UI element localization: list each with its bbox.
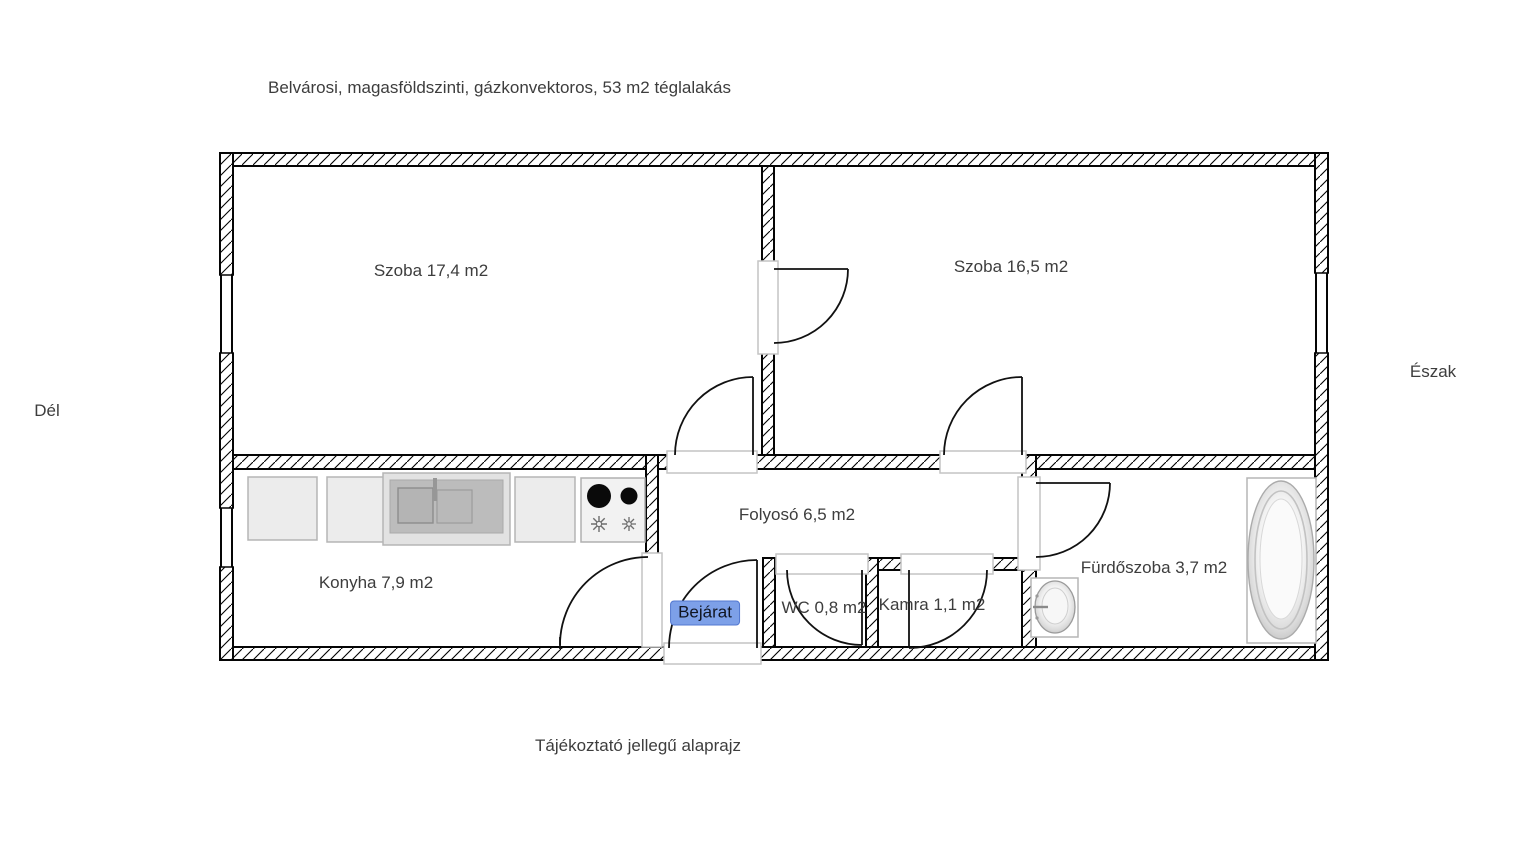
opening-entrance bbox=[664, 643, 761, 664]
wall-west-outer bbox=[220, 153, 233, 660]
opening-szoba-szoba bbox=[758, 261, 778, 354]
window-konyha bbox=[218, 508, 235, 567]
entrance-badge[interactable]: Bejárat bbox=[670, 601, 740, 626]
opening-bathroom bbox=[1018, 477, 1040, 570]
floor-plan-drawing bbox=[0, 0, 1524, 868]
compass-label-south: Dél bbox=[34, 401, 60, 421]
floor-plan-canvas: Belvárosi, magasföldszinti, gázkonvektor… bbox=[0, 0, 1524, 868]
stove-burner-large bbox=[587, 484, 611, 508]
gas-stove-icon bbox=[581, 478, 645, 542]
wall-middle-divider bbox=[233, 455, 1315, 469]
room-label-szoba-2: Szoba 16,5 m2 bbox=[954, 257, 1068, 277]
room-label-kamra: Kamra 1,1 m2 bbox=[879, 595, 986, 615]
window-szoba-2 bbox=[1313, 273, 1330, 353]
kitchen-cabinet-1-icon bbox=[248, 477, 317, 540]
bathroom-sink-icon bbox=[1031, 578, 1078, 637]
gas-burner-star bbox=[591, 516, 607, 532]
wall-north-outer bbox=[220, 153, 1328, 166]
kitchen-cabinet-2-icon bbox=[327, 477, 388, 542]
room-label-furdoszoba: Fürdőszoba 3,7 m2 bbox=[1081, 558, 1227, 578]
page-title: Belvárosi, magasföldszinti, gázkonvektor… bbox=[268, 78, 731, 98]
kitchen-counter bbox=[248, 473, 645, 545]
opening-kamra bbox=[901, 554, 993, 574]
opening-wc bbox=[776, 554, 868, 574]
room-label-wc: WC 0,8 m2 bbox=[781, 598, 866, 618]
room-label-szoba-1: Szoba 17,4 m2 bbox=[374, 261, 488, 281]
stove-burner-small bbox=[621, 488, 638, 505]
wall-east-outer bbox=[1315, 153, 1328, 660]
gas-burner-star bbox=[622, 517, 636, 531]
kitchen-sink-icon bbox=[383, 473, 510, 545]
opening-szoba-2-hall bbox=[940, 451, 1026, 473]
room-label-folyoso: Folyosó 6,5 m2 bbox=[739, 505, 855, 525]
opening-konyha bbox=[642, 553, 662, 647]
bathtub-icon bbox=[1247, 478, 1316, 643]
wall-entry-wc bbox=[763, 558, 775, 647]
window-szoba-1 bbox=[218, 275, 235, 353]
room-label-konyha: Konyha 7,9 m2 bbox=[319, 573, 433, 593]
wall-south-outer bbox=[220, 647, 1328, 660]
compass-label-north: Észak bbox=[1410, 362, 1456, 382]
footer-note: Tájékoztató jellegű alaprajz bbox=[535, 736, 741, 756]
opening-szoba-1 bbox=[667, 451, 757, 473]
kitchen-cabinet-3-icon bbox=[515, 477, 575, 542]
